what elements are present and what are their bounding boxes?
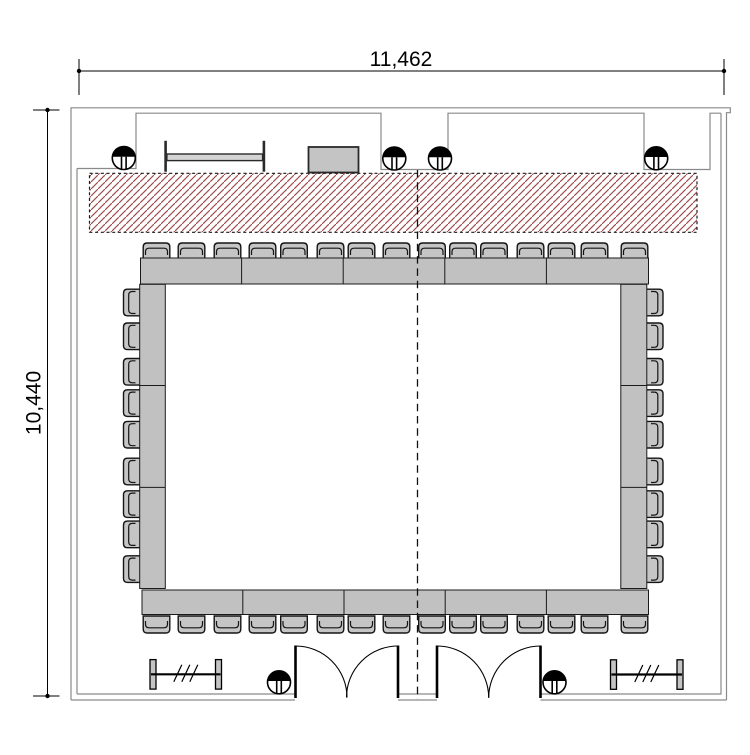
svg-text:11,462: 11,462 — [370, 48, 433, 71]
svg-text:10,440: 10,440 — [23, 371, 46, 435]
